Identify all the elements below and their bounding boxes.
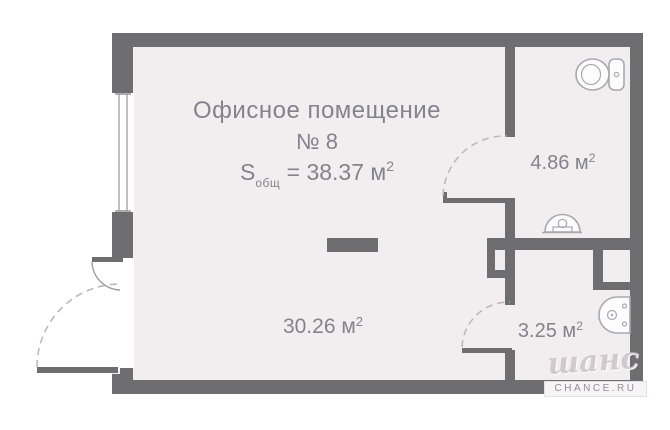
wc-top-door-tick — [443, 192, 447, 203]
entrance-opening — [108, 258, 134, 370]
window-opening — [108, 93, 134, 212]
formula-value: = 38.37 м — [287, 159, 387, 185]
room-label-wc-top: 4.86 м2 — [513, 151, 613, 175]
entrance-small-door-leaf — [92, 257, 123, 262]
formula-sup: 2 — [386, 158, 394, 174]
office-area-value: 30.26 м — [283, 315, 356, 338]
total-area-formula: Sобщ = 38.37 м2 — [142, 158, 492, 190]
wall-top — [112, 33, 643, 47]
wall-left-top — [112, 33, 133, 93]
watermark-site: CHANCE.RU — [544, 381, 647, 397]
wall-left-corner — [112, 374, 133, 394]
wc-top-area-sup: 2 — [589, 151, 596, 165]
office-area-sup: 2 — [356, 314, 363, 329]
plan-number: № 8 — [142, 129, 492, 155]
wall-vertical-middle — [505, 198, 515, 305]
wall-vertical-bottom — [505, 350, 515, 380]
wc-bottom-area-sup: 2 — [576, 319, 583, 333]
entrance-door-leaf — [37, 367, 118, 373]
duct-bottom-wall — [593, 282, 643, 290]
wc-top-area-value: 4.86 м — [530, 152, 588, 174]
room-label-wc-bottom: 3.25 м2 — [503, 319, 598, 343]
wall-left-middle — [112, 212, 133, 258]
wc-bottom-area-value: 3.25 м — [518, 320, 576, 342]
wall-vertical-top — [505, 47, 515, 137]
room-label-office: 30.26 м2 — [268, 314, 378, 339]
floor-plan: Офисное помещение № 8 Sобщ = 38.37 м2 30… — [0, 0, 670, 430]
wc-bottom-door-leaf — [462, 348, 512, 353]
plan-title: Офисное помещение — [142, 97, 492, 125]
formula-subscript: общ — [255, 176, 280, 190]
shaft-bottom-wall — [487, 270, 515, 278]
wc-top-door-leaf — [443, 198, 508, 203]
wall-island-partition — [327, 238, 378, 252]
formula-symbol: S — [240, 159, 255, 185]
